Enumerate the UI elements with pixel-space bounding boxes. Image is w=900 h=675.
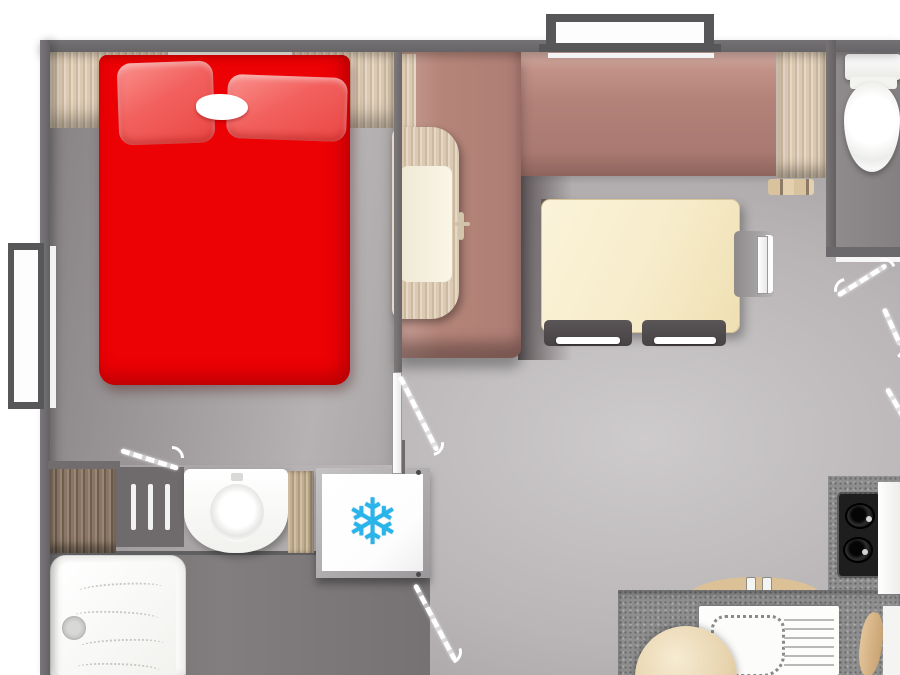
window-top-glass (556, 22, 704, 43)
burner (843, 537, 873, 563)
floor-plan: ❄ (0, 0, 900, 675)
wall-wc-vertical (826, 40, 836, 257)
burner-glint (866, 516, 872, 522)
slat (131, 484, 136, 530)
bed-sheet-fold (196, 94, 248, 120)
sheet-tick (231, 103, 234, 113)
counter-wood-strip (288, 471, 314, 553)
armchair-cushion (400, 166, 452, 282)
wall-bathroom (48, 461, 120, 469)
dining-chair-edge (654, 337, 716, 344)
cabinet-shelf (768, 179, 814, 195)
fridge-hinge (416, 470, 421, 475)
slat (148, 484, 153, 530)
bedroom-door-leaf (392, 372, 402, 474)
armchair-handle (455, 222, 470, 226)
window-left-glass (14, 250, 38, 402)
burner-glint (862, 549, 868, 555)
window-left-sill (50, 246, 56, 408)
dining-table (541, 199, 740, 333)
armchair-handle (458, 212, 464, 240)
wardrobe (48, 467, 116, 553)
appliance-front (878, 482, 900, 594)
shower-drain (62, 616, 86, 640)
corner-cabinet (776, 52, 826, 178)
wall-bedroom-living (394, 52, 402, 372)
washbasin-bowl (210, 484, 264, 542)
fridge-hinge (416, 572, 421, 577)
drainboard (784, 619, 834, 669)
counter-white-strip (883, 606, 900, 675)
fridge-door: ❄ (322, 474, 423, 571)
washbasin-tap (231, 473, 243, 481)
snowflake-icon: ❄ (346, 491, 400, 555)
dining-chair-edge (556, 337, 620, 344)
window-top-sill (548, 53, 714, 58)
sheet-tick (218, 100, 221, 112)
wall-top (40, 40, 900, 52)
wall-wc-horizontal (826, 247, 900, 257)
slat (165, 484, 170, 530)
door-leaf (757, 236, 768, 294)
